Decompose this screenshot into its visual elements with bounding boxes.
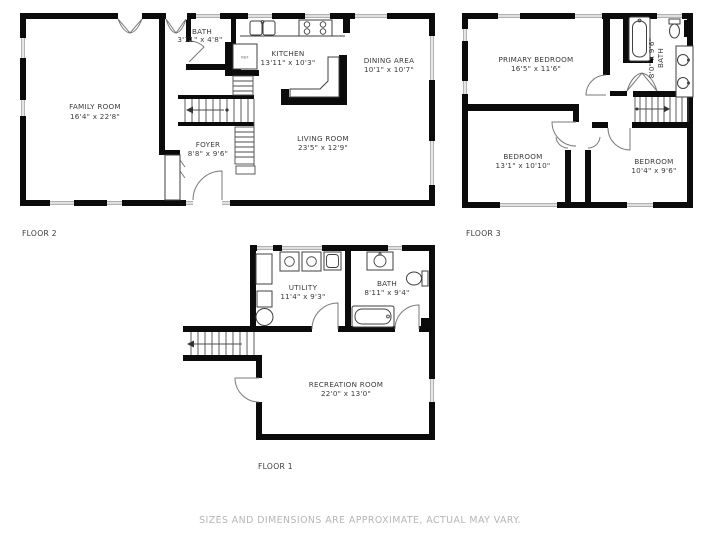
room-dims-bedroom-left: 13'1" x 10'10": [496, 161, 551, 170]
room-label-bedroom-left: BEDROOM: [503, 152, 542, 161]
room-label-bath1: BATH: [377, 279, 397, 288]
water-heater: [256, 309, 273, 326]
floor1-caption: FLOOR 1: [258, 462, 293, 471]
sink: [678, 55, 689, 66]
room-dims-bath1: 8'11" x 9'4": [364, 288, 409, 297]
room-label-primary-bedroom: PRIMARY BEDROOM: [498, 55, 573, 64]
room-dims-utility: 11'4" x 9'3": [280, 292, 325, 301]
room-dims-recreation-room: 22'0" x 13'0": [321, 389, 371, 398]
room-dims-living-room: 23'5" x 12'9": [298, 143, 348, 152]
utility-cabinet: [256, 254, 272, 284]
room-dims-bedroom-right: 10'4" x 9'6": [631, 166, 676, 175]
room-label-kitchen: KITCHEN: [272, 49, 305, 58]
room-label-bath3: BATH: [656, 48, 665, 68]
sink: [678, 78, 689, 89]
dryer: [302, 252, 321, 271]
disclaimer-text: SIZES AND DIMENSIONS ARE APPROXIMATE, AC…: [199, 515, 521, 526]
floorplan-page: REF FAMILY ROOM 16'4" x 22'8" BATH 3'11"…: [0, 0, 720, 540]
room-label-bedroom-right: BEDROOM: [634, 157, 673, 166]
room-label-living-room: LIVING ROOM: [297, 134, 349, 143]
room-dims-bath3: 8'0" x 9'6": [647, 38, 656, 78]
stove: [299, 20, 332, 36]
room-dims-foyer: 8'8" x 9'6": [188, 149, 228, 158]
toilet: [669, 19, 680, 24]
room-label-family-room: FAMILY ROOM: [69, 102, 121, 111]
refrigerator-label: REF: [241, 56, 248, 60]
washer: [280, 252, 299, 271]
room-dims-family-room: 16'4" x 22'8": [70, 112, 120, 121]
room-dims-kitchen: 13'11" x 10'3": [261, 58, 316, 67]
room-label-recreation-room: RECREATION ROOM: [309, 380, 384, 389]
floorplan-image: REF FAMILY ROOM 16'4" x 22'8" BATH 3'11"…: [0, 0, 720, 540]
room-dims-bath2: 3'11" x 4'8": [177, 35, 222, 44]
room-dims-dining-area: 10'1" x 10'7": [364, 65, 414, 74]
background: [0, 0, 720, 540]
floor2-caption: FLOOR 2: [22, 229, 57, 238]
kitchen-sink: [250, 21, 262, 35]
foyer-closet: [165, 155, 180, 200]
room-label-dining-area: DINING AREA: [364, 56, 415, 65]
room-label-utility: UTILITY: [289, 283, 318, 292]
vanity: [676, 46, 693, 97]
room-label-foyer: FOYER: [196, 140, 221, 149]
toilet: [422, 271, 428, 286]
utility-shelf: [257, 291, 272, 307]
floor3-caption: FLOOR 3: [466, 229, 501, 238]
room-dims-primary-bedroom: 16'5" x 11'6": [511, 64, 561, 73]
